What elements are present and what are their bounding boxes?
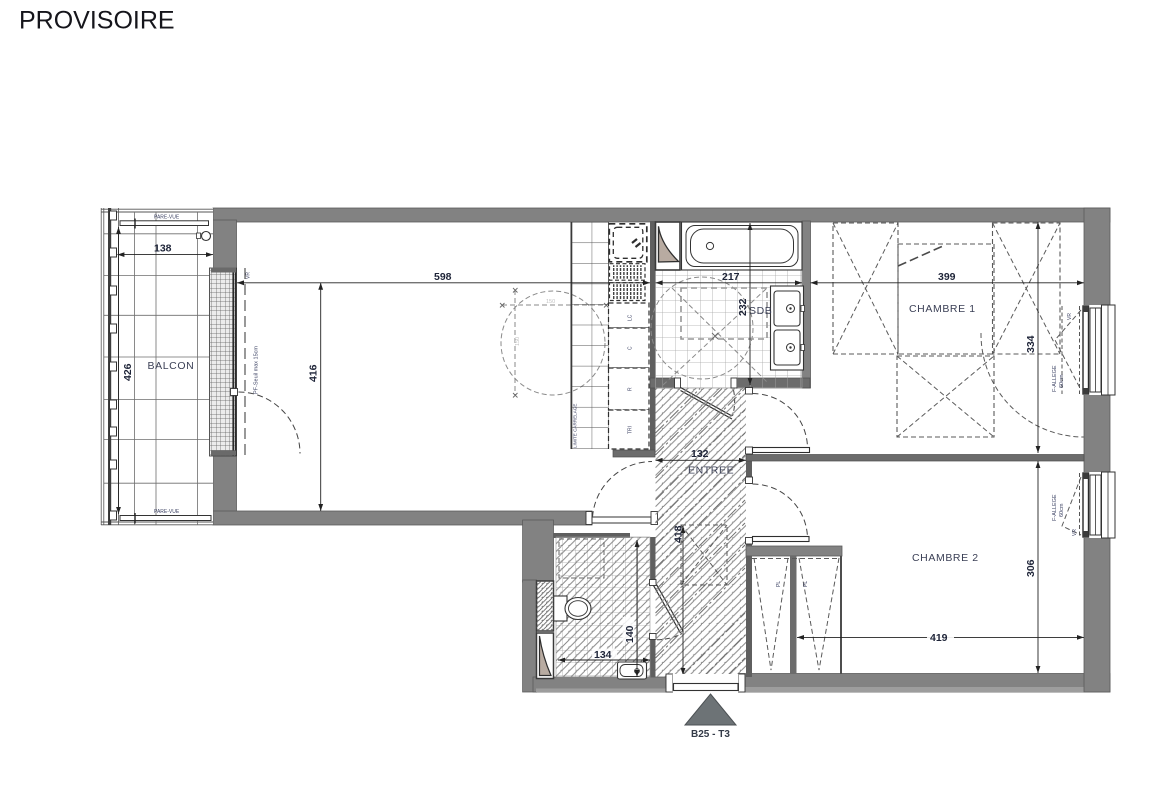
svg-text:PARE-VUE: PARE-VUE	[154, 215, 180, 221]
svg-text:C: C	[628, 346, 634, 350]
svg-text:CHAMBRE 1: CHAMBRE 1	[909, 303, 976, 315]
svg-text:ENTREE: ENTREE	[688, 465, 734, 477]
svg-text:232: 232	[737, 298, 749, 316]
svg-text:132: 132	[691, 448, 709, 460]
svg-text:SDB: SDB	[749, 305, 772, 317]
svg-text:PARE-VUE: PARE-VUE	[154, 509, 180, 515]
svg-text:138: 138	[154, 243, 172, 255]
svg-text:418: 418	[673, 525, 685, 543]
svg-text:PL: PL	[776, 581, 782, 587]
svg-text:140: 140	[624, 625, 636, 643]
svg-text:R: R	[628, 387, 634, 391]
svg-text:334: 334	[1025, 335, 1037, 353]
svg-text:F-ALLEGE: F-ALLEGE	[1052, 365, 1058, 392]
svg-text:399: 399	[938, 271, 956, 283]
svg-text:VR: VR	[246, 272, 252, 279]
svg-text:VR: VR	[1072, 529, 1078, 536]
svg-text:LIMITE CARRELAGE: LIMITE CARRELAGE	[573, 404, 578, 448]
svg-text:134: 134	[594, 649, 612, 661]
svg-text:PROVISOIRE: PROVISOIRE	[19, 7, 175, 35]
svg-text:416: 416	[308, 364, 320, 382]
svg-text:BALCON: BALCON	[148, 360, 195, 372]
svg-text:306: 306	[1025, 559, 1037, 577]
svg-text:217: 217	[722, 271, 740, 283]
svg-text:426: 426	[122, 363, 134, 381]
svg-text:TRI: TRI	[628, 426, 634, 434]
svg-text:150: 150	[546, 299, 555, 305]
svg-text:LC: LC	[628, 314, 634, 321]
svg-text:PF-Seuil max 15cm: PF-Seuil max 15cm	[254, 346, 260, 394]
svg-text:60cm: 60cm	[1059, 374, 1065, 388]
svg-text:598: 598	[434, 271, 452, 283]
svg-text:PL: PL	[803, 581, 809, 587]
svg-text:150: 150	[515, 337, 521, 346]
svg-text:60cm: 60cm	[1059, 503, 1065, 517]
svg-text:B25 - T3: B25 - T3	[691, 729, 730, 740]
svg-text:VR: VR	[1067, 313, 1073, 320]
svg-text:CHAMBRE 2: CHAMBRE 2	[912, 552, 979, 564]
svg-text:F-ALLEGE: F-ALLEGE	[1052, 494, 1058, 521]
svg-text:419: 419	[930, 632, 948, 644]
